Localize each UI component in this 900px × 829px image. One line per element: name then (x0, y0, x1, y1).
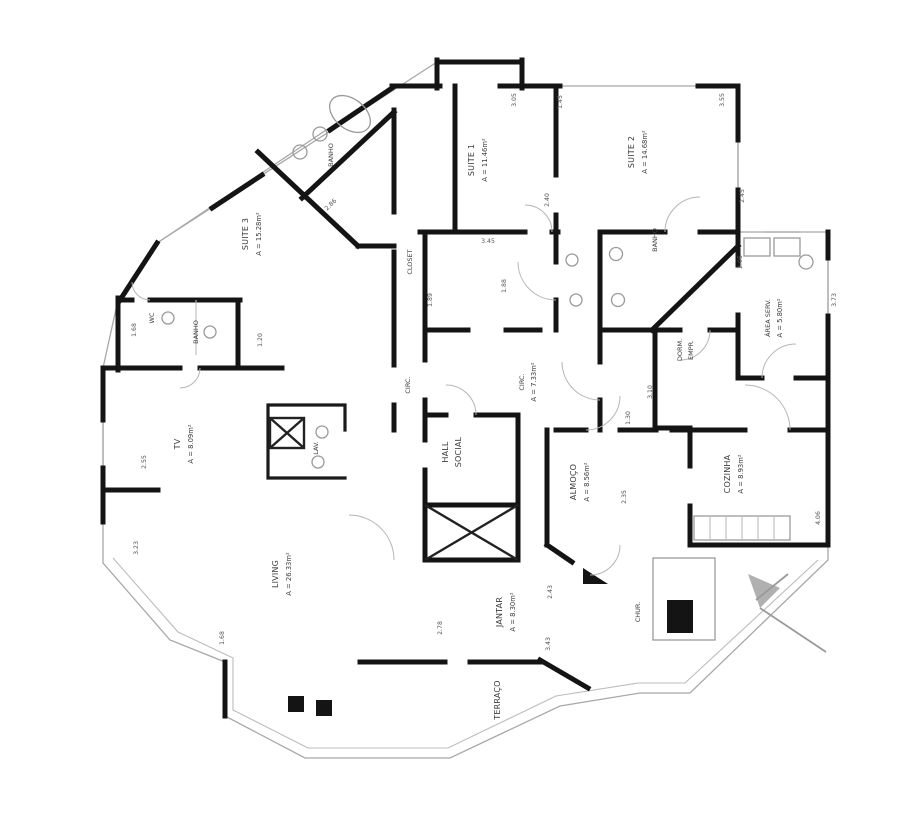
elevator-shaft-icon (425, 505, 518, 560)
floor-plan: SUITE 1 A = 11.46m² SUITE 2 A = 14.68m² … (0, 0, 900, 829)
outer-outline (103, 62, 828, 758)
sink-icon (570, 294, 582, 306)
sink-icon (204, 326, 216, 338)
dim-label: 1.30 (625, 411, 632, 425)
room-area-suite2: A = 14.68m² (641, 130, 649, 174)
toilet-icon (162, 312, 174, 324)
dim-label: 3.23 (133, 541, 140, 555)
dim-label: 1.89 (427, 293, 434, 307)
dim-label: 2.35 (621, 490, 628, 504)
dim-label: 1.68 (219, 631, 226, 645)
room-label-chur: CHUR. (634, 602, 642, 623)
room-label-circ-int: CIRC. (518, 373, 526, 390)
room-label-circ: CIRC. (404, 376, 412, 393)
wall-pier (288, 696, 304, 712)
room-label-suite1: SUITE 1 (467, 144, 476, 176)
dim-label: 3.45 (481, 238, 495, 245)
room-label-banho-top: BANHO (327, 143, 335, 167)
duct-and-lav (268, 405, 345, 478)
barbecue-block (667, 600, 693, 633)
room-label-area-serv: ÁREA SERV. (763, 299, 772, 337)
dim-label: 2.55 (141, 455, 148, 469)
room-label-closet: CLOSET (406, 249, 414, 274)
room-area-suite1: A = 11.46m² (481, 138, 489, 182)
dim-label: 1.45 (557, 95, 564, 109)
dim-label: 2.40 (544, 193, 551, 207)
room-label-hall-2: SOCIAL (454, 436, 463, 467)
room-label-banho3: BANHO (192, 320, 200, 344)
dim-label: 1.68 (131, 323, 138, 337)
dim-label: 2.05 (737, 255, 744, 269)
room-area-cozinha: A = 8.93m² (737, 454, 745, 493)
toilet-icon (312, 456, 324, 468)
room-area-living: A = 26.33m² (285, 552, 293, 596)
room-label-dorm-empr-2: EMPR. (687, 340, 695, 360)
dim-label: 3.73 (831, 293, 838, 307)
sink-icon (316, 426, 328, 438)
dim-label: 3.10 (647, 385, 654, 399)
toilet-icon (610, 248, 623, 261)
door-arcs (132, 197, 796, 575)
room-label-suite2: SUITE 2 (627, 136, 636, 168)
room-label-dorm-empr-1: DORM. (676, 339, 684, 361)
dim-label: 2.45 (739, 189, 746, 203)
dim-label: 3.55 (719, 93, 726, 107)
toilet-icon (566, 254, 578, 266)
room-area-tv: A = 8.09m² (187, 424, 195, 463)
dim-label: 3.05 (511, 93, 518, 107)
room-area-jantar: A = 8.30m² (509, 592, 517, 631)
room-area-circ-int: A = 7.33m² (530, 362, 538, 401)
dim-label: 2.86 (324, 198, 339, 213)
room-label-tv: TV (173, 438, 182, 450)
walls (103, 60, 828, 716)
room-label-lav: LAV. (312, 441, 320, 454)
room-area-suite3: A = 15.28m² (255, 212, 263, 256)
room-label-almoco: ALMOÇO (569, 464, 578, 500)
room-label-wc: WC (148, 312, 156, 323)
north-arrow-icon (748, 574, 826, 652)
tank-icon (799, 255, 813, 269)
laundry-tank-icon (744, 238, 770, 256)
room-area-area-serv: A = 5.80m² (776, 298, 784, 337)
dim-label: 1.20 (257, 333, 264, 347)
room-label-jantar: JANTAR (495, 597, 504, 628)
room-area-almoco: A = 8.56m² (583, 462, 591, 501)
floor-plan-page: SUITE 1 A = 11.46m² SUITE 2 A = 14.68m² … (0, 0, 900, 829)
room-label-suite3: SUITE 3 (241, 218, 250, 250)
wall-pier (316, 700, 332, 716)
room-label-terraco: TERRAÇO (493, 680, 502, 720)
sink-icon (612, 294, 625, 307)
dim-label: 2.43 (547, 585, 554, 599)
dim-label: 3.43 (545, 637, 552, 651)
room-label-hall-1: HALL (441, 441, 450, 463)
dim-label: 1.88 (501, 279, 508, 293)
room-label-cozinha: COZINHA (723, 454, 732, 493)
dim-label: 4.06 (815, 511, 822, 525)
room-label-living: LIVING (271, 560, 280, 588)
washer-icon (774, 238, 800, 256)
wall-corner (583, 568, 608, 584)
room-label-banho-suite2: BANHO (651, 228, 659, 252)
dim-label: 2.78 (437, 621, 444, 635)
